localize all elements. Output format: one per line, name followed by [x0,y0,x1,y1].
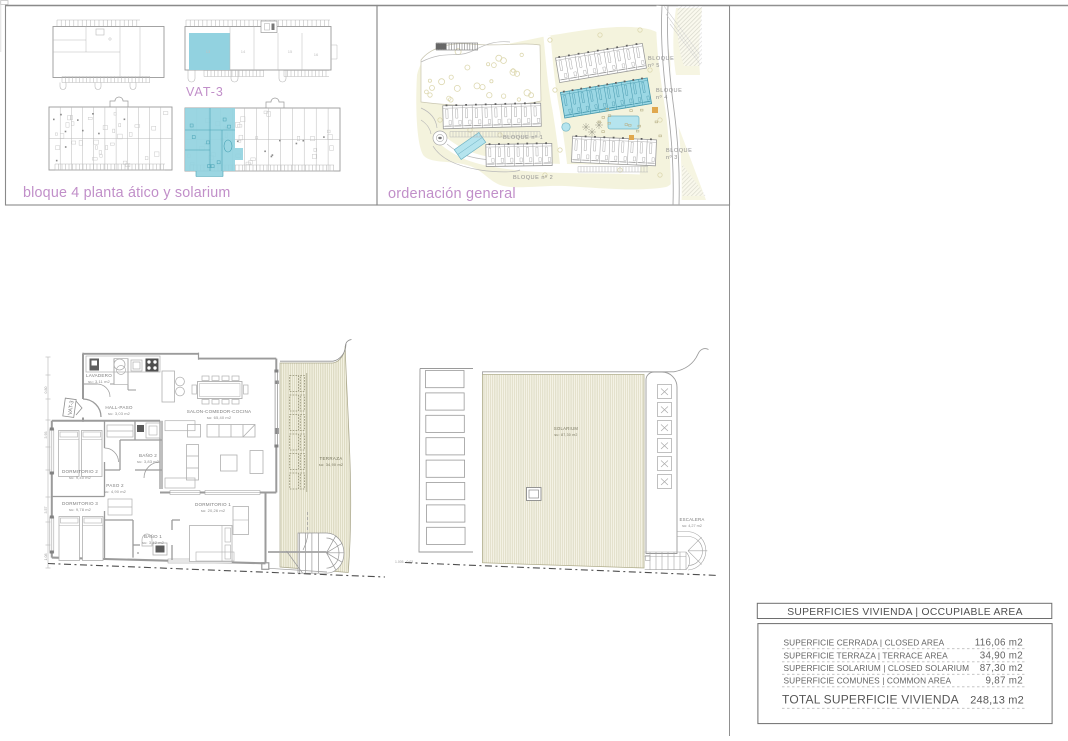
svg-text:SUPERFICIE TERRAZA | TERRACE: SUPERFICIE TERRAZA | TERRACE AREA [784,651,949,661]
svg-text:TERRAZA: TERRAZA [319,456,342,461]
svg-text:SALON-COMEDOR-COCINA: SALON-COMEDOR-COCINA [187,409,252,414]
svg-text:0.80: 0.80 [44,387,48,394]
svg-text:13: 13 [206,49,211,54]
svg-text:14: 14 [241,49,246,54]
svg-text:BLOQUE: BLOQUE [656,88,682,94]
svg-text:nº 5: nº 5 [648,62,660,69]
svg-text:BLOQUE: BLOQUE [648,56,674,62]
svg-text:34,90 m2: 34,90 m2 [980,651,1023,662]
svg-text:SUPERFICIES VIVIENDA | OCCUPIA: SUPERFICIES VIVIENDA | OCCUPIABLE AREA [787,607,1023,618]
svg-text:ordenación general: ordenación general [388,186,516,202]
svg-text:su: 3,83 m2: su: 3,83 m2 [137,459,160,464]
svg-text:SUPERFICIE SOLARIUM | CLOSED S: SUPERFICIE SOLARIUM | CLOSED SOLARIUM [784,663,970,673]
svg-text:su: 87,30 m2: su: 87,30 m2 [554,433,577,437]
svg-text:BLOQUE: BLOQUE [666,148,692,154]
svg-text:SUPERFICIE COMUNES | COMMON AR: SUPERFICIE COMUNES | COMMON AREA [784,676,952,686]
svg-text:VAT-3: VAT-3 [186,85,224,99]
svg-text:nº 4: nº 4 [656,94,668,101]
svg-text:PASO 2: PASO 2 [106,483,124,488]
svg-text:16: 16 [314,52,319,57]
svg-text:su: 9,40 m2: su: 9,40 m2 [69,475,92,480]
svg-text:HALL-PASO: HALL-PASO [105,405,132,410]
svg-text:BLOQUE nº 2: BLOQUE nº 2 [513,174,553,181]
svg-text:ESCALERA: ESCALERA [679,517,704,522]
svg-text:BAÑO 2: BAÑO 2 [139,452,157,458]
svg-text:su: 4,27 m2: su: 4,27 m2 [682,524,702,528]
svg-text:248,13 m2: 248,13 m2 [970,695,1024,707]
svg-text:DORMITORIO 2: DORMITORIO 2 [62,469,98,474]
svg-text:9,87 m2: 9,87 m2 [986,676,1024,687]
svg-text:LAVADERO: LAVADERO [86,373,112,378]
svg-text:3.57: 3.57 [44,507,48,514]
svg-text:BLOQUE nº 1: BLOQUE nº 1 [503,134,543,141]
svg-text:TOTAL SUPERFICIE VIVIENDA: TOTAL SUPERFICIE VIVIENDA [782,693,959,707]
svg-text:1.08: 1.08 [44,554,48,561]
svg-text:DORMITORIO 3: DORMITORIO 3 [62,501,98,506]
svg-text:nº 3: nº 3 [666,154,678,161]
svg-text:su: 20,26 m2: su: 20,26 m2 [201,508,226,513]
svg-text:su: 34,90 m2: su: 34,90 m2 [319,463,343,467]
svg-text:DORMITORIO 1: DORMITORIO 1 [195,502,231,507]
svg-text:87,30 m2: 87,30 m2 [980,663,1023,674]
svg-text:BAÑO 1: BAÑO 1 [144,533,162,539]
svg-text:1.005 - 0.03: 1.005 - 0.03 [395,560,413,564]
svg-text:SOLARIUM: SOLARIUM [554,426,578,431]
svg-text:su: 4,90 m2: su: 4,90 m2 [104,489,127,494]
svg-text:bloque 4 planta ático y solari: bloque 4 planta ático y solarium [23,185,230,201]
svg-text:3.93: 3.93 [44,432,48,439]
svg-text:su: 65,40 m2: su: 65,40 m2 [207,415,232,420]
svg-text:116,06 m2: 116,06 m2 [975,638,1023,649]
svg-text:su: 3,11 m2: su: 3,11 m2 [88,379,110,384]
svg-text:15: 15 [288,49,293,54]
svg-text:SUPERFICIE CERRADA | CLOSED AR: SUPERFICIE CERRADA | CLOSED AREA [784,638,945,648]
svg-text:su: 3,03 m2: su: 3,03 m2 [108,411,131,416]
svg-text:su: 9,78 m2: su: 9,78 m2 [69,507,92,512]
svg-text:su: 3,42 m2: su: 3,42 m2 [142,540,165,545]
